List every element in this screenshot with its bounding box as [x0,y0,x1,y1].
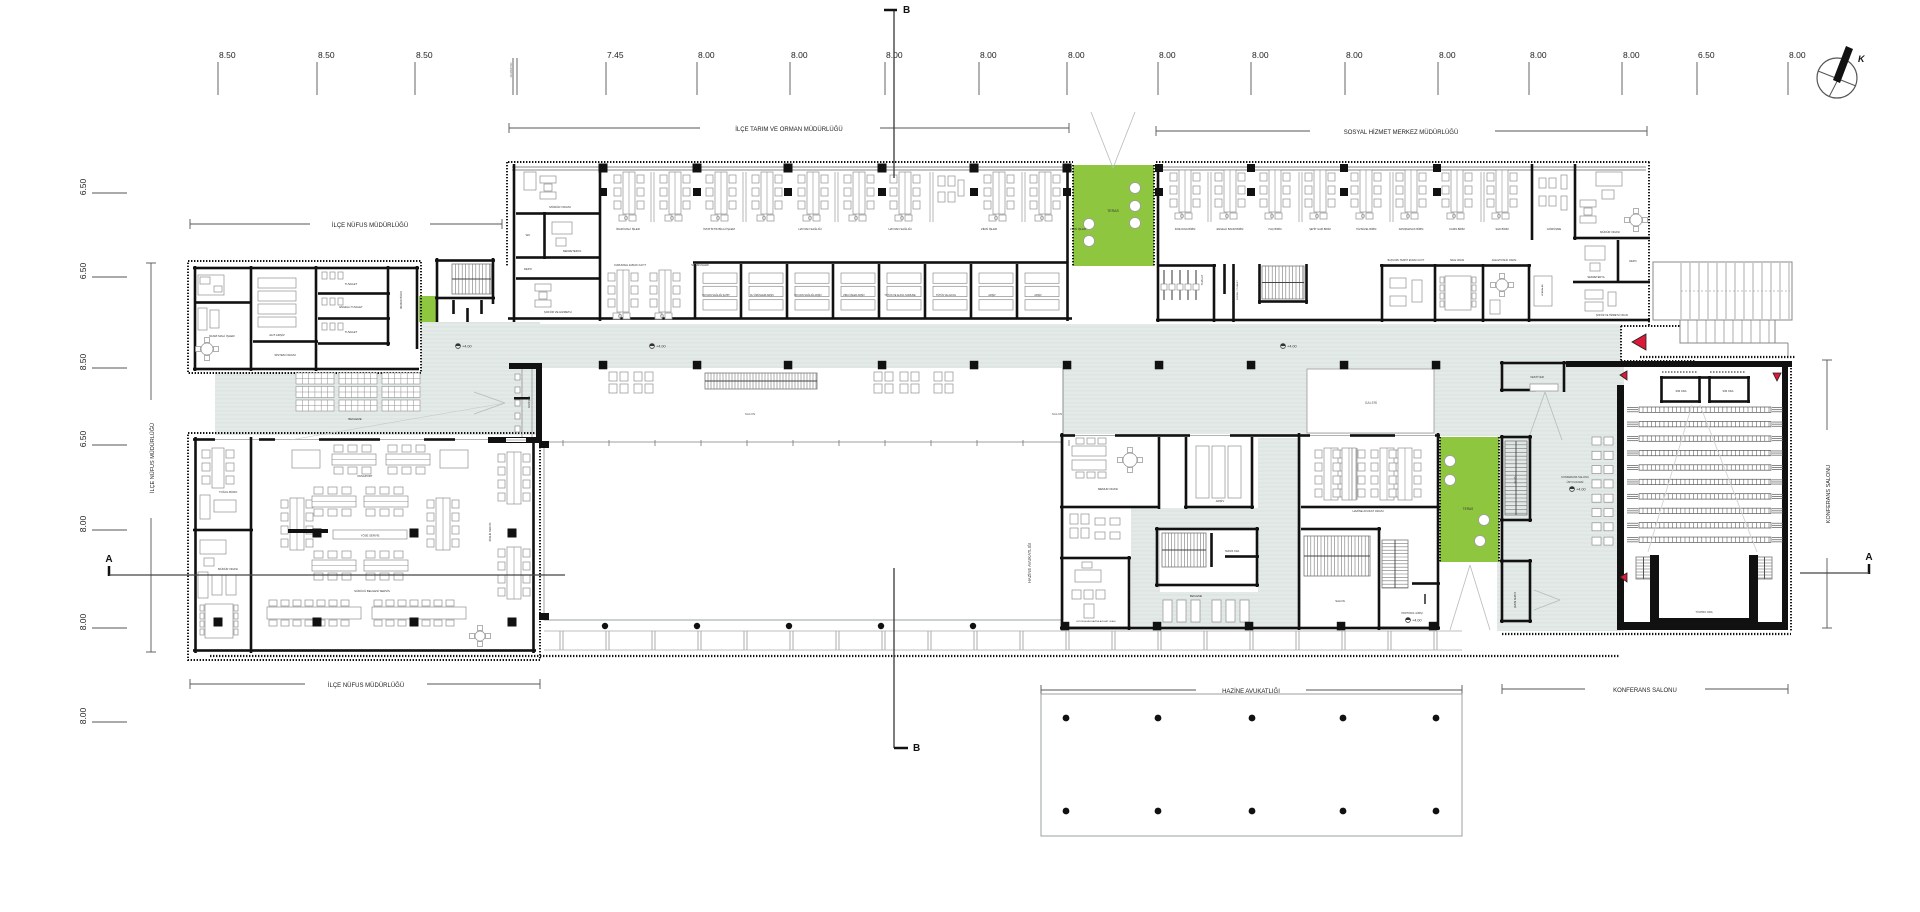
svg-text:DEPO: DEPO [1629,259,1636,263]
svg-text:A: A [105,554,112,565]
svg-text:SEKRETERYA: SEKRETERYA [563,249,582,253]
svg-text:İDARİ MALİ İŞLER: İDARİ MALİ İŞLER [209,333,235,338]
svg-text:KULİS: KULİS [1514,476,1517,483]
svg-text:ŞOFÖR VE HİZMETLİ ODASI: ŞOFÖR VE HİZMETLİ ODASI [1596,314,1628,317]
svg-text:TÜTÜN VE ALKOL NUMUNE: TÜTÜN VE ALKOL NUMUNE [884,294,916,297]
svg-text:8.50: 8.50 [318,50,335,60]
svg-text:7.45: 7.45 [607,50,624,60]
svg-text:ENGELLİ BAKIM BİRİM: ENGELLİ BAKIM BİRİM [1217,228,1244,231]
svg-text:B: B [913,743,920,754]
svg-text:8.50: 8.50 [78,353,88,370]
svg-text:İLÇE NÜFUS MÜDÜRLÜĞÜ: İLÇE NÜFUS MÜDÜRLÜĞÜ [328,682,404,689]
svg-text:8.00: 8.00 [1789,50,1806,60]
svg-text:İSTATİSTİK BİLGİ İŞLEM: İSTATİSTİK BİLGİ İŞLEM [703,226,735,231]
svg-text:KADIN BİRİM: KADIN BİRİM [1449,228,1464,231]
svg-text:YÖSE SERVİS: YÖSE SERVİS [361,533,380,538]
svg-text:6.50: 6.50 [78,430,88,447]
svg-text:YÜZSÜZEL BİRİM: YÜZSÜZEL BİRİM [1356,228,1377,231]
svg-text:+4.00: +4.00 [1287,345,1297,349]
svg-text:8.00: 8.00 [1623,50,1640,60]
svg-text:HAÇ BİRİM: HAÇ BİRİM [1269,228,1282,231]
svg-text:HAYVAN SAĞLIĞI: HAYVAN SAĞLIĞI [798,226,821,231]
svg-text:TÜTÜN VE ALKOL: TÜTÜN VE ALKOL [936,294,957,297]
svg-text:HAZİNE AVUKATLIĞI: HAZİNE AVUKATLIĞI [1027,543,1032,583]
svg-text:MÜDÜR ODASI: MÜDÜR ODASI [549,205,571,209]
svg-text:B: B [903,5,910,16]
svg-text:8.00: 8.00 [1439,50,1456,60]
svg-text:YOĞUL BÜRO: YOĞUL BÜRO [219,489,238,494]
svg-text:SALON: SALON [1052,412,1062,416]
svg-text:ENGELLİ TUVALET: ENGELLİ TUVALET [1236,280,1239,300]
svg-text:8.00: 8.00 [1068,50,1085,60]
svg-text:ZİRAİ İŞLER: ZİRAİ İŞLER [981,226,997,231]
svg-text:8.00: 8.00 [1530,50,1547,60]
svg-text:SALON: SALON [1335,599,1344,603]
svg-text:6.50: 6.50 [78,178,88,195]
svg-text:İDARİ MALİ İŞLER: İDARİ MALİ İŞLER [616,226,640,231]
svg-text:KURUMSAL EVRAK KAYIT: KURUMSAL EVRAK KAYIT [614,263,646,267]
svg-text:SOSYAL HİZMET MERKEZ MÜDÜRLÜĞÜ: SOSYAL HİZMET MERKEZ MÜDÜRLÜĞÜ [1344,129,1459,136]
svg-text:ARŞİV: ARŞİV [1034,294,1042,297]
svg-text:SİSTEM ODASI: SİSTEM ODASI [274,352,296,357]
svg-text:AHT ARŞİV: AHT ARŞİV [269,332,285,337]
svg-text:DEPO: DEPO [524,267,533,271]
svg-text:8.00: 8.00 [1159,50,1176,60]
svg-text:8.00: 8.00 [1346,50,1363,60]
svg-text:ŞEHİT GAZİ BİRİM: ŞEHİT GAZİ BİRİM [1309,228,1330,231]
svg-text:ZİRAİ İŞLER ARŞİV: ZİRAİ İŞLER ARŞİV [843,294,865,297]
svg-text:SU ÜRÜNLERİ ARŞİV: SU ÜRÜNLERİ ARŞİV [750,294,774,297]
svg-text:GALERİ: GALERİ [1365,400,1377,405]
svg-text:KONFERANS SALONU: KONFERANS SALONU [1561,475,1589,479]
svg-text:A: A [1865,552,1872,563]
svg-text:6.50: 6.50 [1698,50,1715,60]
svg-text:8.00: 8.00 [698,50,715,60]
svg-text:ATAMALAR: ATAMALAR [1541,284,1544,296]
svg-text:TUVALET: TUVALET [345,282,358,286]
svg-text:WC: WC [526,233,531,237]
svg-text:İLÇE TARIM VE ORMAN MÜDÜRLÜĞÜ: İLÇE TARIM VE ORMAN MÜDÜRLÜĞÜ [735,126,842,133]
svg-text:GÖRÜŞME: GÖRÜŞME [1547,227,1562,231]
svg-text:PASAPORT: PASAPORT [358,474,373,478]
svg-text:ZİRAİ İŞLER: ZİRAİ İŞLER [1070,226,1086,231]
svg-text:ARŞİV: ARŞİV [1216,498,1225,503]
svg-text:8.00: 8.00 [78,707,88,724]
svg-text:İLÇE NÜFUS MÜDÜRLÜĞÜ: İLÇE NÜFUS MÜDÜRLÜĞÜ [332,222,408,229]
svg-text:6.50: 6.50 [78,262,88,279]
svg-text:ARŞİV: ARŞİV [988,294,996,297]
svg-text:TEKNİK ODA: TEKNİK ODA [1225,550,1240,553]
svg-text:8.00: 8.00 [791,50,808,60]
svg-text:SGD BİRİM: SGD BİRİM [1495,228,1508,231]
svg-text:SALON: SALON [745,412,755,416]
svg-text:MEMUR ODASI: MEMUR ODASI [1098,487,1118,491]
svg-text:+4.00: +4.00 [1576,488,1586,492]
svg-text:MÜDÜR ODASI: MÜDÜR ODASI [218,567,238,571]
svg-text:HAZİNE AVUKAT ODASI: HAZİNE AVUKAT ODASI [1352,508,1383,513]
svg-text:+4.00: +4.00 [656,345,666,349]
svg-text:SEKRETERYA: SEKRETERYA [1587,275,1604,279]
svg-text:HAYVAN SAĞLIĞI ARŞİV: HAYVAN SAĞLIĞI ARŞİV [794,294,822,297]
svg-text:BÜYÜKŞEHİR HAZİNE AVUKAT ODASI: BÜYÜKŞEHİR HAZİNE AVUKAT ODASI [1076,620,1116,623]
svg-text:TERAS: TERAS [1107,209,1119,213]
svg-text:BEKLEME: BEKLEME [1190,594,1203,598]
svg-text:8.00: 8.00 [78,515,88,532]
svg-text:İCDE DAVA BİRİM: İCDE DAVA BİRİM [1175,228,1196,231]
svg-text:DANIŞMA: DANIŞMA [527,396,531,408]
svg-text:8.00: 8.00 [78,613,88,630]
svg-text:TUVALET: TUVALET [345,330,358,334]
svg-text:KONFERANS SALONU: KONFERANS SALONU [1613,688,1677,694]
svg-text:VESTİYER: VESTİYER [1530,374,1544,379]
svg-text:PROTOKOL GİRİŞİ: PROTOKOL GİRİŞİ [1402,612,1423,615]
svg-text:İLÇE NÜFUS MÜDÜRLÜĞÜ: İLÇE NÜFUS MÜDÜRLÜĞÜ [149,423,156,493]
svg-text:KONFERANS SALONU: KONFERANS SALONU [1826,465,1832,523]
svg-text:+4.00: +4.00 [462,345,472,349]
svg-text:DİLATASYON: DİLATASYON [510,62,513,77]
svg-text:DANIŞMANLIK BİRİM: DANIŞMANLIK BİRİM [1399,228,1424,231]
svg-text:8.50: 8.50 [219,50,236,60]
svg-text:SÜRÜCÜ BELGESİ SERVİS: SÜRÜCÜ BELGESİ SERVİS [354,588,390,593]
svg-text:MÜDÜR ODASI: MÜDÜR ODASI [1600,230,1620,234]
svg-text:8.00: 8.00 [980,50,997,60]
svg-text:BEKLEME: BEKLEME [348,417,361,421]
svg-text:MEMUR BÜRO: MEMUR BÜRO [399,291,403,309]
svg-text:HAYVAN SAĞLIĞI ŞAHİT: HAYVAN SAĞLIĞI ŞAHİT [702,294,730,297]
svg-text:HAYVAN SAĞLIĞI: HAYVAN SAĞLIĞI [888,226,911,231]
svg-text:HALE ODASI: HALE ODASI [1450,259,1465,262]
svg-text:+4.00: +4.00 [1412,619,1422,623]
svg-text:TERAS: TERAS [1463,507,1474,511]
svg-text:ÇEKİM SERVİS: ÇEKİM SERVİS [1514,591,1517,608]
svg-text:BAŞVURU TESPİT EVRAK KAYIT: BAŞVURU TESPİT EVRAK KAYIT [1388,259,1425,262]
svg-text:8.50: 8.50 [416,50,433,60]
svg-text:ŞOFÖR VE HİZMETLİ: ŞOFÖR VE HİZMETLİ [544,309,572,314]
svg-text:8.00: 8.00 [1252,50,1269,60]
svg-text:AİLE ETKİNLİK ODASI: AİLE ETKİNLİK ODASI [1492,259,1517,262]
svg-text:TUVALET: TUVALET [1201,274,1204,285]
